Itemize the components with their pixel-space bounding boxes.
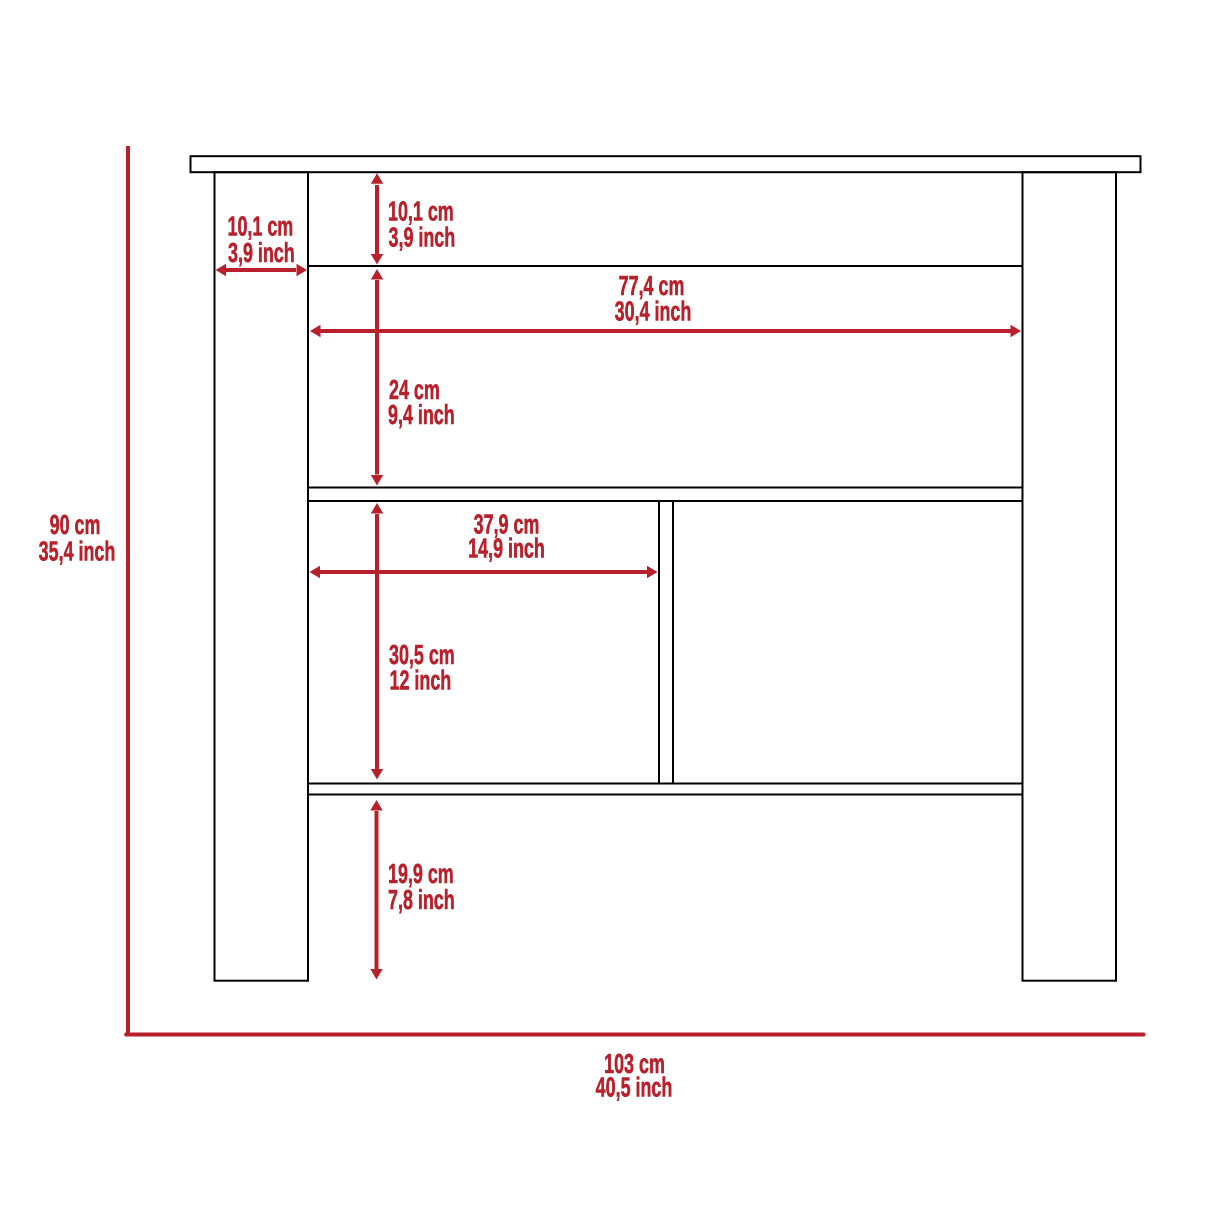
svg-text:9,4 inch: 9,4 inch — [388, 399, 455, 430]
svg-text:30,4 inch: 30,4 inch — [615, 295, 692, 326]
svg-text:12 inch: 12 inch — [390, 664, 452, 695]
svg-text:40,5 inch: 40,5 inch — [596, 1071, 673, 1102]
svg-text:3,9 inch: 3,9 inch — [228, 237, 295, 268]
svg-text:7,8 inch: 7,8 inch — [388, 884, 455, 915]
svg-text:3,9 inch: 3,9 inch — [389, 221, 456, 252]
svg-text:35,4 inch: 35,4 inch — [39, 535, 116, 566]
svg-text:14,9 inch: 14,9 inch — [468, 532, 545, 563]
